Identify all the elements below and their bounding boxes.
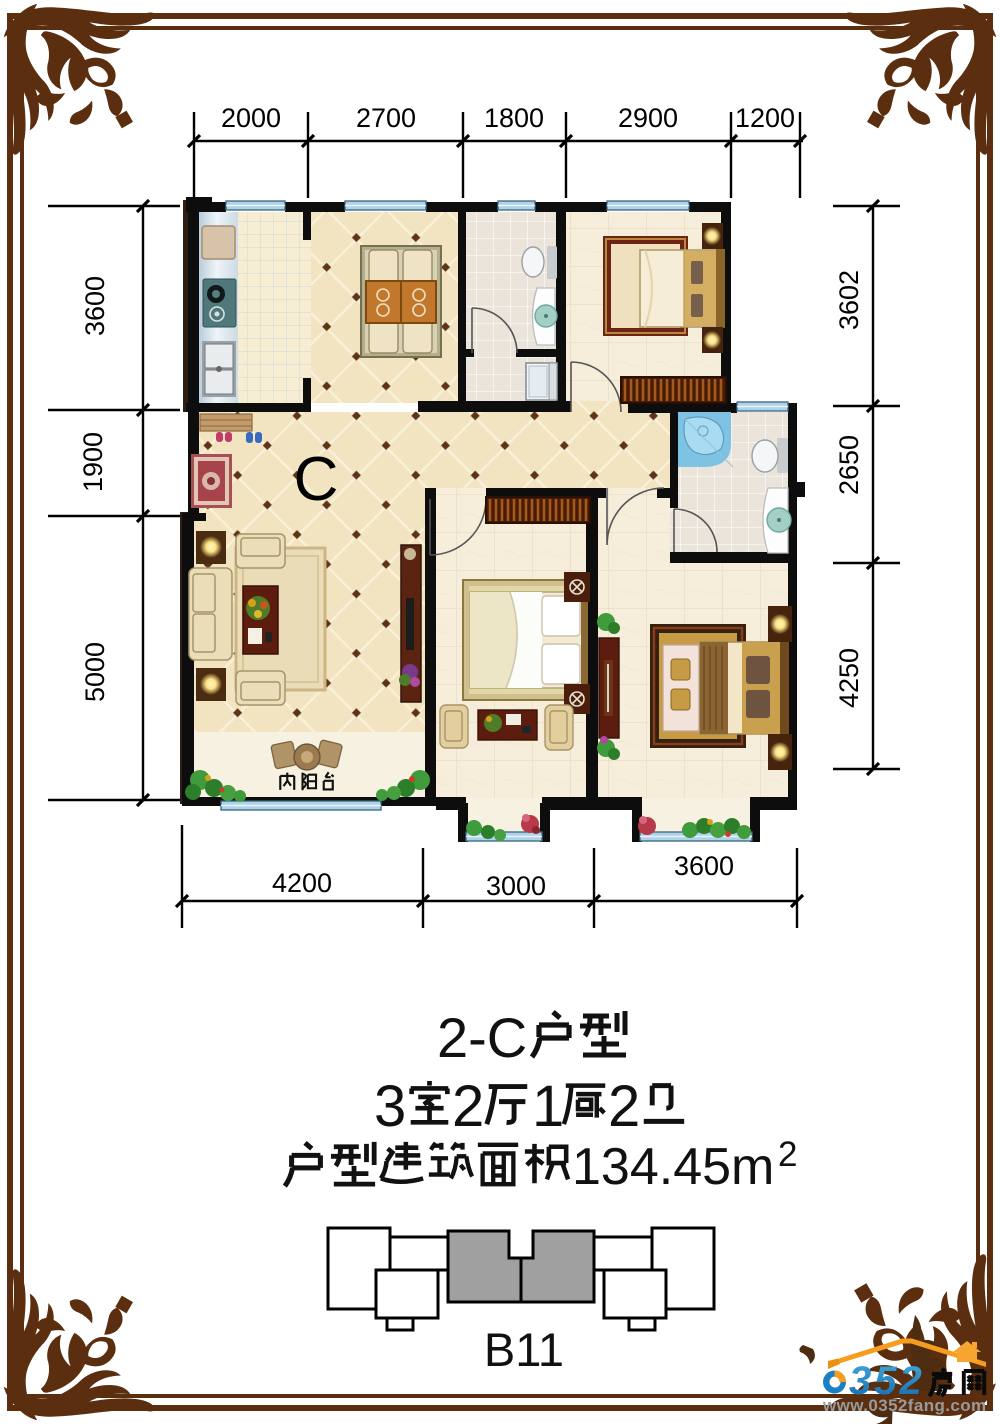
svg-text:3000: 3000 <box>486 871 546 901</box>
svg-text:1800: 1800 <box>484 103 544 133</box>
svg-text:2-C: 2-C <box>437 1006 527 1069</box>
svg-text:3: 3 <box>374 1074 406 1139</box>
svg-text:2: 2 <box>608 1074 640 1139</box>
svg-text:www.0352fang.com: www.0352fang.com <box>822 1396 987 1415</box>
svg-text:3600: 3600 <box>80 276 110 336</box>
svg-text:5000: 5000 <box>80 642 110 702</box>
svg-text:1200: 1200 <box>735 103 795 133</box>
svg-text:B11: B11 <box>484 1323 564 1376</box>
svg-text:2000: 2000 <box>221 103 281 133</box>
svg-text:2900: 2900 <box>618 103 678 133</box>
svg-text:4250: 4250 <box>834 648 864 708</box>
svg-text:C: C <box>294 445 339 514</box>
svg-text:2700: 2700 <box>356 103 416 133</box>
svg-text:2650: 2650 <box>834 435 864 495</box>
svg-text:2: 2 <box>452 1074 484 1139</box>
svg-text:3600: 3600 <box>674 851 734 881</box>
svg-text:2: 2 <box>778 1135 797 1174</box>
svg-text:1900: 1900 <box>78 432 108 492</box>
svg-text:3602: 3602 <box>834 270 864 330</box>
svg-text:4200: 4200 <box>272 868 332 898</box>
svg-text:1: 1 <box>532 1074 564 1139</box>
svg-text:134.45m: 134.45m <box>572 1138 774 1196</box>
